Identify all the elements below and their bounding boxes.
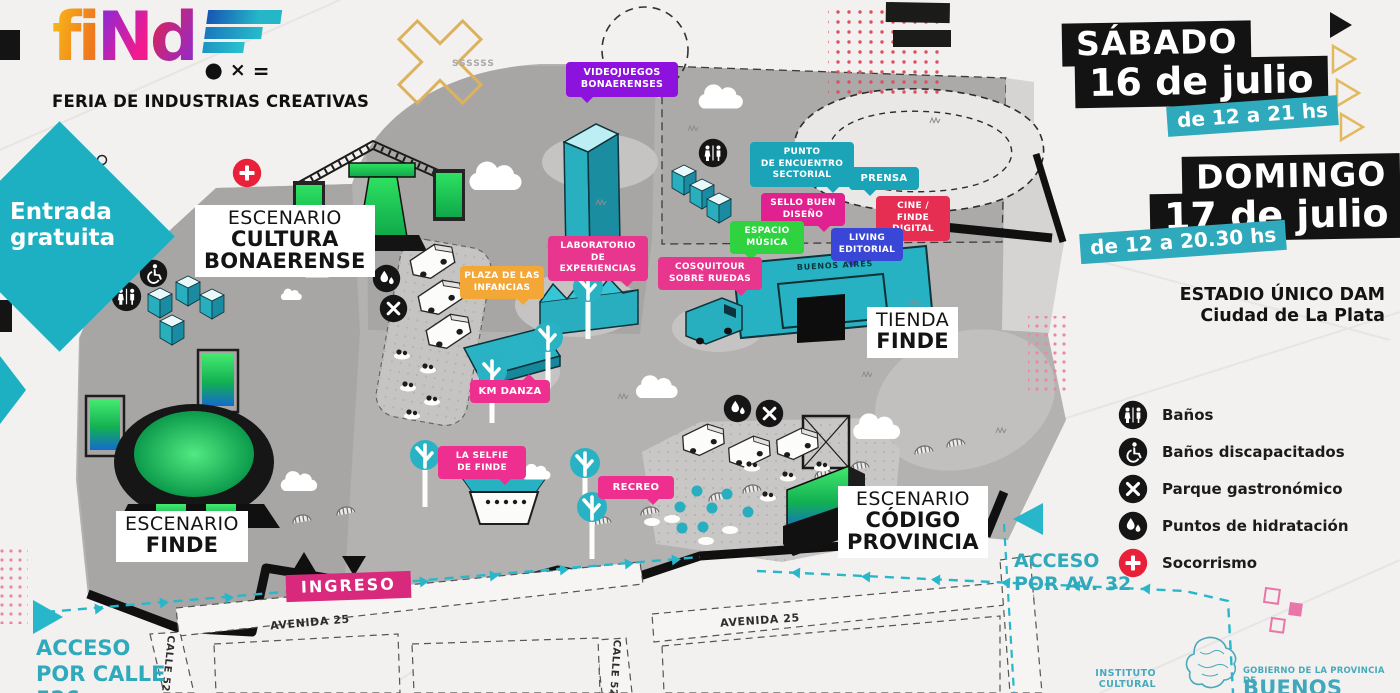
stage-codigo-l1: ESCENARIO: [847, 490, 979, 510]
venue-name: ESTADIO ÚNICO DAM Ciudad de La Plata: [1140, 285, 1385, 328]
tienda-l1: TIENDA: [876, 311, 949, 331]
stage-codigo-l2: CÓDIGO: [847, 510, 979, 532]
food-park-icon: [756, 400, 783, 427]
legend-label-puntos-hidratacion: Puntos de hidratación: [1162, 517, 1392, 535]
stage-codigo-l3: PROVINCIA: [847, 532, 979, 554]
free-entry-label: Entrada gratuita: [10, 199, 130, 252]
map-label-living-editorial: LIVING EDITORIAL: [831, 228, 903, 261]
saturday-date-text: 16 de julio: [1089, 57, 1314, 105]
food-park-icon: [380, 295, 407, 322]
event-map-poster: fi N d ● × = FERIA DE INDUSTRIAS CREATIV…: [0, 0, 1400, 693]
stage-cultura-l3: BONAERENSE: [204, 251, 366, 273]
legend-label-banos: Baños: [1162, 406, 1392, 424]
ingreso-label: INGRESO: [286, 571, 412, 602]
tienda-l2: FINDE: [876, 331, 949, 353]
logo-symbols: ● × =: [205, 60, 281, 81]
logo-e-bars: [201, 10, 283, 56]
stage-label-tienda-finde: TIENDA FINDE: [867, 307, 958, 358]
instituto-cultural-logo: INSTITUTO CULTURAL: [1092, 668, 1156, 691]
finde-logotype: fi N d ● × =: [52, 4, 382, 90]
dot-symbol: ●: [205, 60, 223, 81]
venue-name-line: ESTADIO ÚNICO DAM: [1140, 285, 1385, 306]
first-aid-icon: [233, 159, 261, 187]
stage-label-finde: ESCENARIO FINDE: [116, 511, 248, 562]
finde-logo: fi N d ● × = FERIA DE INDUSTRIAS CREATIV…: [52, 4, 382, 111]
access-calle526-label: ACCESO POR CALLE 526: [36, 636, 166, 693]
logo-letter-n: N: [97, 4, 150, 72]
map-label-punto-encuentro: PUNTO DE ENCUENTRO SECTORIAL: [750, 142, 854, 187]
decor-stamp: SSSSSS: [452, 59, 495, 69]
legend-label-parque-gastronomico: Parque gastronómico: [1162, 480, 1392, 498]
map-label-videojuegos: VIDEOJUEGOS BONAERENSES: [566, 62, 678, 97]
logo-e-glyph: ● × =: [205, 10, 281, 81]
map-label-espacio-musica: ESPACIO MÚSICA: [730, 221, 804, 254]
stage-finde-l1: ESCENARIO: [125, 515, 239, 535]
legend-restroom-icon: [1119, 401, 1147, 429]
stage-label-codigo-provincia: ESCENARIO CÓDIGO PROVINCIA: [838, 486, 988, 558]
logo-letter-fi: fi: [52, 4, 97, 72]
buenos-aires-logo: BUENOS AIRES: [1243, 676, 1400, 693]
x-symbol: ×: [230, 61, 246, 80]
map-label-cosquitour: COSQUITOUR SOBRE RUEDAS: [658, 257, 762, 290]
map-label-la-selfie: LA SELFIE DE FINDE: [438, 446, 526, 479]
stage-label-cultura-bonaerense: ESCENARIO CULTURA BONAERENSE: [195, 205, 375, 277]
legend-label-socorrismo: Socorrismo: [1162, 554, 1392, 572]
legend-food-park-icon: [1119, 475, 1147, 503]
map-label-km-danza: KM DANZA: [470, 380, 550, 403]
stage-finde-l2: FINDE: [125, 535, 239, 557]
legend-wheelchair-icon: [1119, 438, 1147, 466]
venue-city-line: Ciudad de La Plata: [1140, 306, 1385, 327]
access-av32-label: ACCESO POR AV. 32: [1014, 550, 1131, 596]
logo-letter-d: d: [150, 4, 195, 72]
brand-tagline: FERIA DE INDUSTRIAS CREATIVAS: [52, 92, 382, 111]
stage-cultura-l2: CULTURA: [204, 229, 366, 251]
map-label-recreo: RECREO: [598, 476, 674, 499]
equals-symbol: =: [253, 61, 270, 81]
legend-hydration-icon: [1119, 512, 1147, 540]
stage-cultura-l1: ESCENARIO: [204, 209, 366, 229]
hydration-icon: [373, 265, 400, 292]
province-map-logo: [1187, 637, 1236, 687]
map-label-laboratorio: LABORATORIO DE EXPERIENCIAS: [548, 236, 648, 281]
map-label-prensa: PRENSA: [849, 167, 919, 190]
restroom-icon: [699, 139, 727, 167]
legend-label-banos-discapacitados: Baños discapacitados: [1162, 443, 1392, 461]
access-arrow-calle526: [33, 600, 63, 634]
map-label-plaza-infancias: PLAZA DE LAS INFANCIAS: [460, 266, 544, 299]
hydration-icon: [724, 395, 751, 422]
